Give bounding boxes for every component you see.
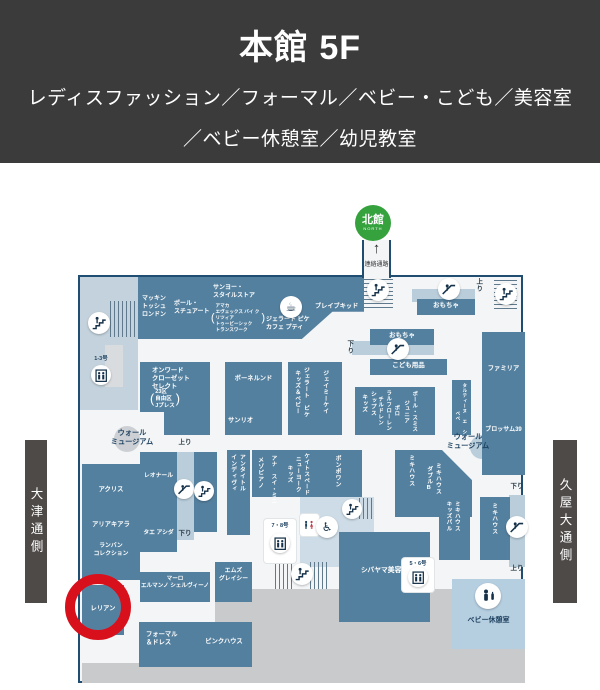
label-formal-dress: フォーマル ＆ドレス <box>146 631 194 647</box>
street-label-otsu: 大津通側 <box>25 440 47 603</box>
label-nobori-topright: 上り <box>473 278 483 292</box>
label-mackintosh: マッキン トッシュ ロンドン <box>142 296 178 319</box>
label-kudari-mid: 下り <box>344 340 354 354</box>
label-baby-rest: ベビー休憩室 <box>454 616 523 625</box>
label-leonard: レオナール <box>140 473 177 481</box>
escalator-icon-left <box>174 479 194 499</box>
label-gelato-cafe: ジェラート ピケ カフェ プティ <box>266 317 320 333</box>
label-kudari-right: 下り <box>505 483 529 491</box>
label-paulsmith-jr: ポール・スミス ジュニア <box>402 391 418 432</box>
label-gelato-kids: ジェラート ピケ キッズ＆ベビー <box>292 367 309 418</box>
label-familiar: ファミリア <box>482 365 525 373</box>
escalator-icon-mid <box>387 338 409 360</box>
label-lanvin: ランバン コレクション <box>82 543 140 558</box>
north-direction-label: NORTH <box>363 227 382 231</box>
label-mikihouse-main: ミキハウス <box>406 455 415 487</box>
north-building-label: 北館 <box>362 215 384 226</box>
label-pinkhouse: ピンクハウス <box>196 638 252 646</box>
north-building-badge: 北館 NORTH <box>355 205 391 241</box>
passage-label: 連絡通路 <box>364 259 388 268</box>
street-label-hisaya: 久屋大通側 <box>553 440 577 603</box>
label-katespade-kids: ケイトスペード ニューヨーク キッズ <box>285 453 310 496</box>
label-mezzopiano: メゾピアノ <box>255 457 264 489</box>
stairs-leftstrip <box>110 301 138 337</box>
label-akris: アクリス <box>82 486 140 494</box>
floor-map-canvas: マッキン トッシュ ロンドンポール・ スチュアートサンヨー・ スタイルストアアマ… <box>78 275 523 683</box>
label-mikihouse-right: ミキハウス <box>489 503 498 535</box>
floor-header: 本館 5F レディスファッション／フォーマル／ベビー・こども／美容室 ／ベビー休… <box>0 0 600 163</box>
label-mikihouse-kidspal: ミキハウス キッズパル <box>444 501 461 532</box>
north-connecting-passage: ↑ 連絡通路 <box>362 240 391 278</box>
label-kudari-left: 下り <box>174 530 196 538</box>
baby-room-icon <box>475 583 501 609</box>
label-onward: オンワード クローゼット セレクト <box>152 367 204 392</box>
highlight-circle-lelian <box>65 574 131 640</box>
wheelchair-icon: ♿ <box>316 516 338 538</box>
label-sanyo-brands: アマカ エヴェックス バイ クリツィア トゥービーシック トランスワーク <box>211 303 265 333</box>
stairs-icon-topright <box>495 283 517 305</box>
label-wall-museum-left: ウォール ミュージアム <box>100 428 164 447</box>
coffee-icon: ☕ <box>280 296 302 318</box>
left-service-strip <box>80 277 138 410</box>
label-annasui-mini: アナ スイ・ミニ <box>269 455 277 504</box>
stairs-icon-leftmid <box>194 481 214 501</box>
label-kodomo-yohin: こども用品 <box>370 362 447 370</box>
page: { "header": { "title": "本館 5F", "subtitl… <box>0 0 600 690</box>
label-untitled-indivi: アンタイトル インディヴィ <box>228 454 245 492</box>
label-sanrio: サンリオ <box>228 417 268 425</box>
escalator-icon-right <box>506 516 528 538</box>
label-omocha-1: おもちゃ <box>417 302 475 310</box>
corridor-gap <box>124 622 139 663</box>
label-marlo: マーロ エルマンノ シェルヴィーノ <box>140 576 210 591</box>
label-sanyo: サンヨー・ スタイルストア <box>213 285 263 301</box>
label-nobori-left: 上り <box>175 439 195 447</box>
label-elevator-78: 7・8号 <box>264 523 296 530</box>
label-ships-kids: シップス キッズ <box>359 391 376 416</box>
label-bonpoint: ボンポワン <box>332 455 341 488</box>
label-ems-gracy: エムズ グレイシー <box>215 568 252 583</box>
elevator-icon-13 <box>91 365 111 385</box>
floor-subtitle-line1: レディスファッション／フォーマル／ベビー・こども／美容室 <box>0 83 600 110</box>
gray-zone-bottomleft <box>82 663 139 683</box>
label-bravekid: ブレイブキッド <box>315 303 363 311</box>
stairs-icon-leftstrip <box>88 312 110 334</box>
label-nobori-right: 上り <box>505 565 529 573</box>
label-polo-children: ポロ ラルフローレン チルドレン <box>376 390 400 431</box>
floor-title: 本館 5F <box>0 20 600 69</box>
stairs-icon-central <box>342 499 362 519</box>
escalator-icon-topright <box>438 278 460 300</box>
stairs-icon-passage <box>367 279 389 301</box>
label-wall-museum-right: ウォール ミュージアム <box>436 432 500 451</box>
north-arrow-icon: ↑ <box>373 241 381 256</box>
floor-subtitle-line2: ／ベビー休憩室／幼児教室 <box>0 124 600 151</box>
label-tae-ashida: タエ アシダ <box>140 530 177 538</box>
store-familiar <box>482 332 525 475</box>
label-jamiekay: ジェイミーケイ <box>320 370 329 414</box>
label-bornelund: ボーネルンド <box>225 375 282 383</box>
elevator-icon-56 <box>408 567 428 587</box>
label-ariakiara: アリアキアラ <box>82 521 140 529</box>
label-paul-stuart: ポール・ スチュアート <box>174 301 214 317</box>
elevator-icon-78 <box>270 533 290 553</box>
label-mikihouse-doubleb: ミキハウス ダブルB <box>424 463 441 495</box>
stairs-bottom-hatch-r <box>310 562 330 589</box>
label-elevator-13: 1-3号 <box>82 356 120 363</box>
stairs-icon-bottom <box>291 563 313 585</box>
label-onward-brands: 23区 自由区 Jプレス <box>150 389 194 410</box>
